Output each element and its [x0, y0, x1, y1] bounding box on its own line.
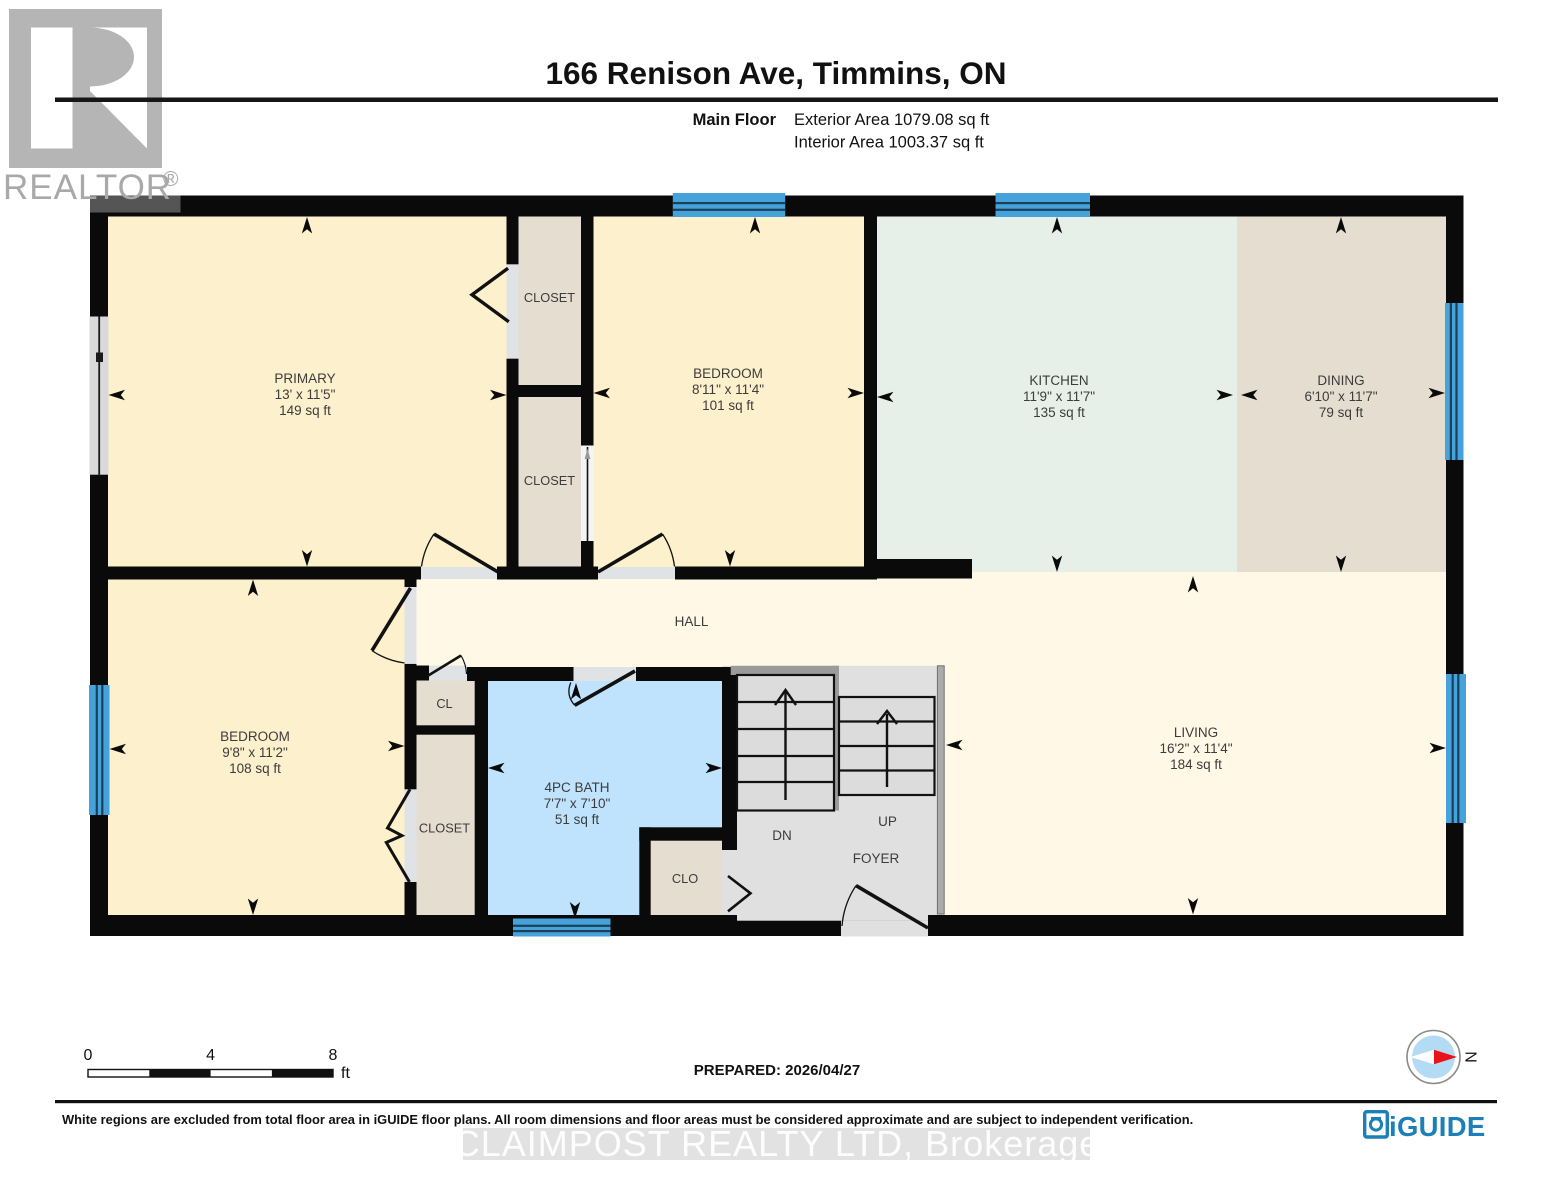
svg-text:184 sq ft: 184 sq ft — [1170, 757, 1222, 772]
svg-text:FOYER: FOYER — [853, 851, 900, 866]
svg-text:7'7" x 7'10": 7'7" x 7'10" — [544, 796, 611, 811]
svg-text:BEDROOM: BEDROOM — [693, 366, 763, 381]
svg-text:0: 0 — [84, 1047, 93, 1064]
svg-text:4PC BATH: 4PC BATH — [544, 780, 609, 795]
svg-text:®: ® — [163, 168, 179, 191]
svg-text:135 sq ft: 135 sq ft — [1033, 405, 1085, 420]
svg-text:CLOSET: CLOSET — [524, 290, 575, 305]
svg-text:108 sq ft: 108 sq ft — [229, 761, 281, 776]
svg-text:6'10" x 11'7": 6'10" x 11'7" — [1304, 389, 1377, 404]
svg-text:CL: CL — [436, 696, 452, 711]
svg-text:4: 4 — [206, 1047, 215, 1064]
svg-text:166 Renison Ave, Timmins, ON: 166 Renison Ave, Timmins, ON — [546, 55, 1007, 91]
svg-text:PREPARED: 2026/04/27: PREPARED: 2026/04/27 — [694, 1062, 860, 1079]
svg-text:8: 8 — [329, 1047, 338, 1064]
svg-text:13' x 11'5": 13' x 11'5" — [275, 387, 336, 402]
svg-text:CLO: CLO — [672, 871, 698, 886]
svg-text:101 sq ft: 101 sq ft — [702, 398, 754, 413]
svg-text:Exterior Area 1079.08 sq ft: Exterior Area 1079.08 sq ft — [794, 111, 990, 129]
svg-text:iGUIDE: iGUIDE — [1389, 1111, 1486, 1142]
svg-text:CLOSET: CLOSET — [524, 473, 575, 488]
svg-text:8'11" x 11'4": 8'11" x 11'4" — [692, 382, 764, 397]
svg-text:N: N — [1462, 1051, 1479, 1063]
svg-text:9'8" x 11'2": 9'8" x 11'2" — [222, 745, 288, 760]
svg-text:51 sq ft: 51 sq ft — [555, 812, 600, 827]
svg-text:KITCHEN: KITCHEN — [1029, 373, 1088, 388]
svg-text:11'9" x 11'7": 11'9" x 11'7" — [1023, 389, 1095, 404]
svg-text:Main Floor: Main Floor — [693, 111, 777, 129]
svg-text:DINING: DINING — [1317, 373, 1364, 388]
svg-text:16'2" x 11'4": 16'2" x 11'4" — [1159, 741, 1232, 756]
svg-text:HALL: HALL — [675, 614, 709, 629]
svg-text:REALTOR: REALTOR — [3, 168, 172, 207]
svg-text:79 sq ft: 79 sq ft — [1319, 405, 1364, 420]
svg-text:DN: DN — [772, 828, 792, 843]
svg-text:CLOSET: CLOSET — [419, 821, 470, 836]
svg-text:LIVING: LIVING — [1174, 725, 1218, 740]
svg-text:ft: ft — [341, 1065, 350, 1082]
svg-text:PRIMARY: PRIMARY — [274, 371, 335, 386]
svg-text:UP: UP — [878, 814, 897, 829]
svg-text:BEDROOM: BEDROOM — [220, 729, 290, 744]
svg-text:149 sq ft: 149 sq ft — [279, 403, 331, 418]
svg-text:Interior Area 1003.37 sq ft: Interior Area 1003.37 sq ft — [794, 134, 984, 152]
svg-text:CLAIMPOST REALTY LTD, Brokerag: CLAIMPOST REALTY LTD, Brokerage — [454, 1123, 1101, 1164]
